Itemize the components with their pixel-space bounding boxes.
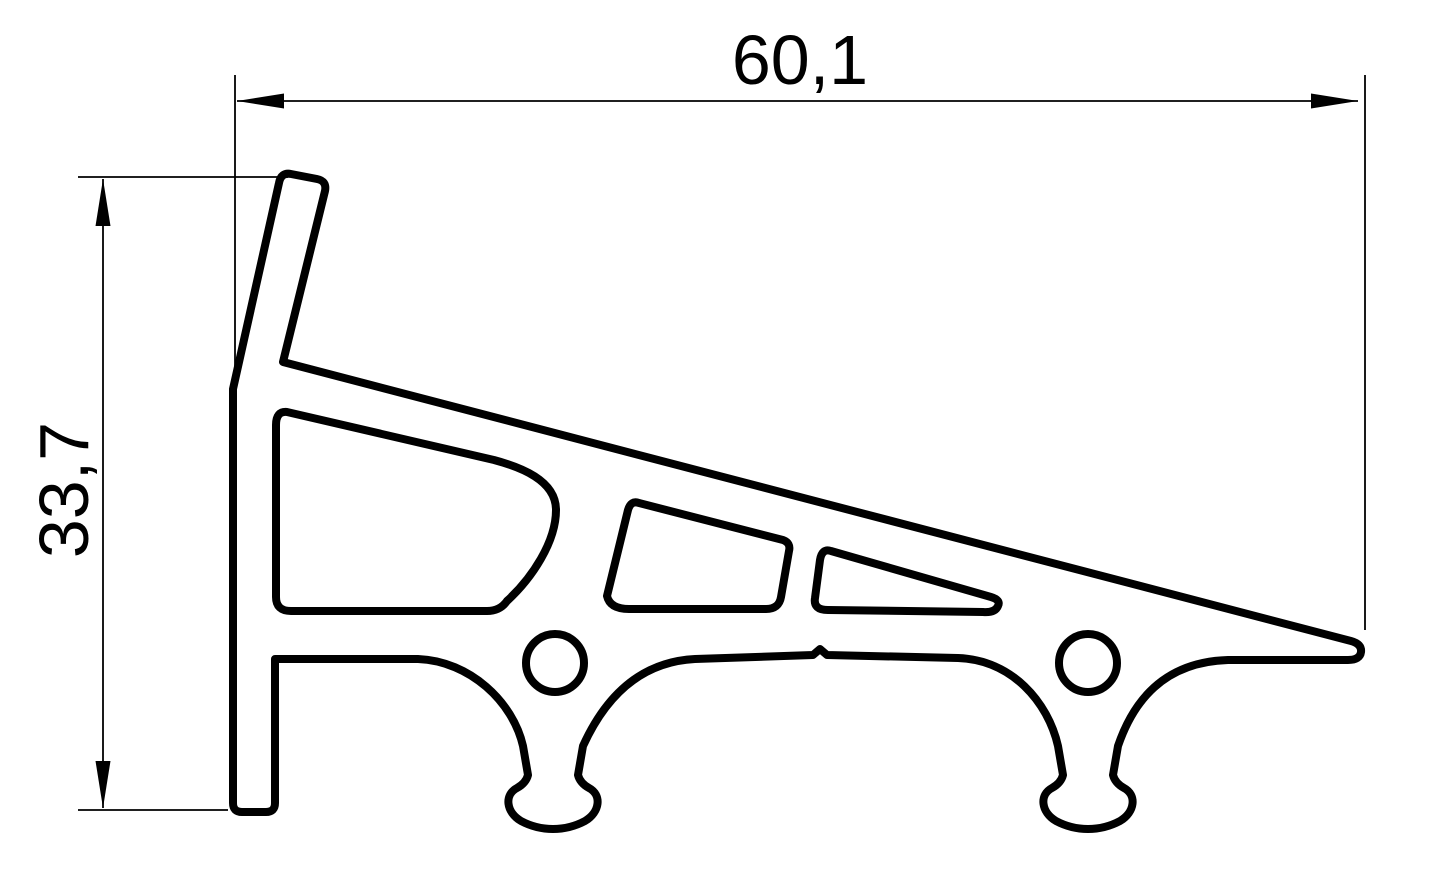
width-dimension-label: 60,1: [732, 21, 868, 99]
profile-outline: [233, 174, 1361, 829]
drawing-canvas: 60,1 33,7: [0, 0, 1441, 881]
height-dimension: 33,7: [25, 177, 288, 810]
width-arrow-left-icon: [237, 94, 284, 109]
profile-drawing: 60,1 33,7: [0, 0, 1441, 881]
profile-hole-right: [1059, 634, 1117, 692]
profile-cutout-2: [607, 502, 789, 609]
height-dimension-label: 33,7: [25, 422, 103, 558]
width-arrow-right-icon: [1311, 94, 1358, 109]
profile-cutout-1: [276, 412, 556, 611]
profile-cutout-3: [815, 550, 999, 612]
height-arrow-up-icon: [96, 179, 111, 226]
profile-hole-left: [526, 634, 584, 692]
width-dimension: 60,1: [235, 21, 1365, 630]
height-arrow-down-icon: [96, 761, 111, 808]
